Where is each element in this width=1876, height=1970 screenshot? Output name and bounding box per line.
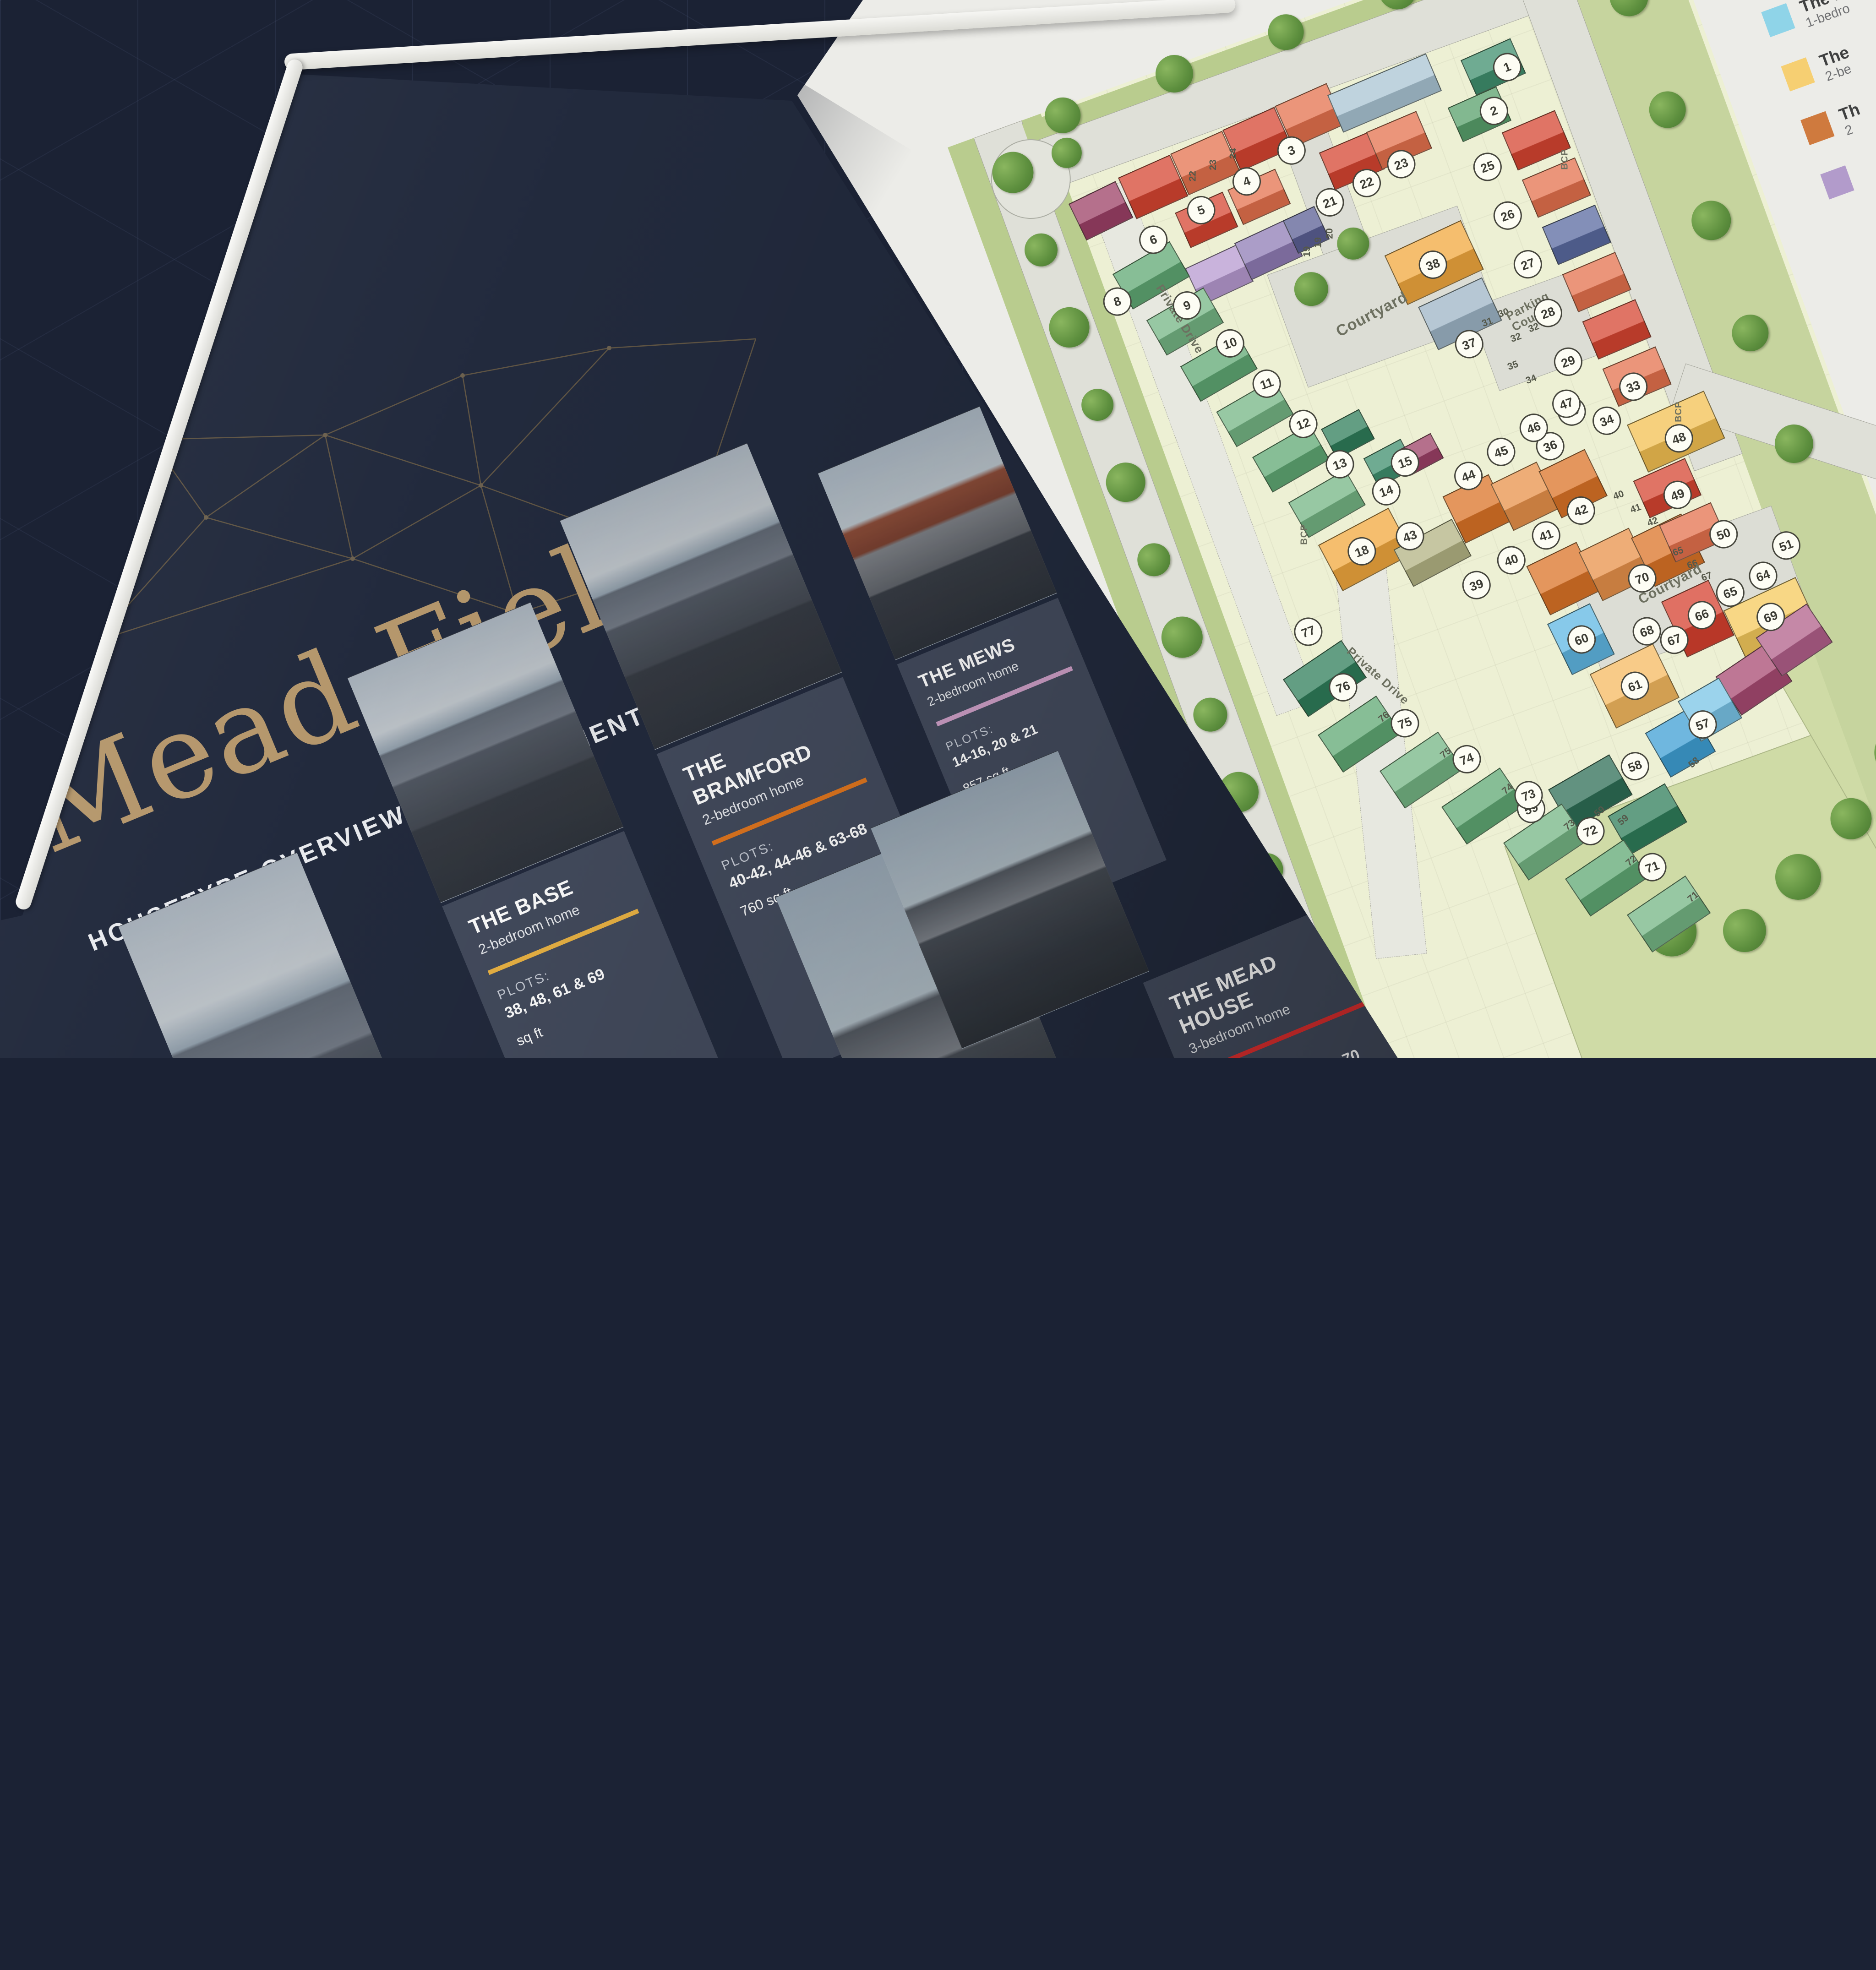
street-label: BCP [1674,402,1684,422]
legend-swatch-icon [1800,111,1834,145]
parking-space-number: 23 [1208,159,1219,170]
legend-swatch-icon [1820,165,1854,199]
housetype-legend: The Kit 1-bedro The 2-be Th 2 [1761,0,1876,222]
legend-swatch-icon [1781,57,1815,91]
parking-space-number: 19 [1302,246,1313,257]
house-photo [118,853,451,1300]
area-value [1224,1063,1395,1134]
street-label: BCP [1299,524,1309,545]
street-label: BCP [1560,149,1570,169]
parking-space-number: 24 [1228,148,1239,159]
legend-swatch-icon [1761,3,1795,37]
parking-space-number: 22 [1188,171,1199,181]
legend-item: The Kit 1-bedro [1761,0,1876,44]
housetype-photo-tile [118,853,453,1307]
plots-value: 25, 27, 28, 49-52 & 70 [1212,1034,1390,1122]
parking-space-number: 19 [1313,237,1324,248]
parking-space-number: 20 [1324,228,1335,239]
